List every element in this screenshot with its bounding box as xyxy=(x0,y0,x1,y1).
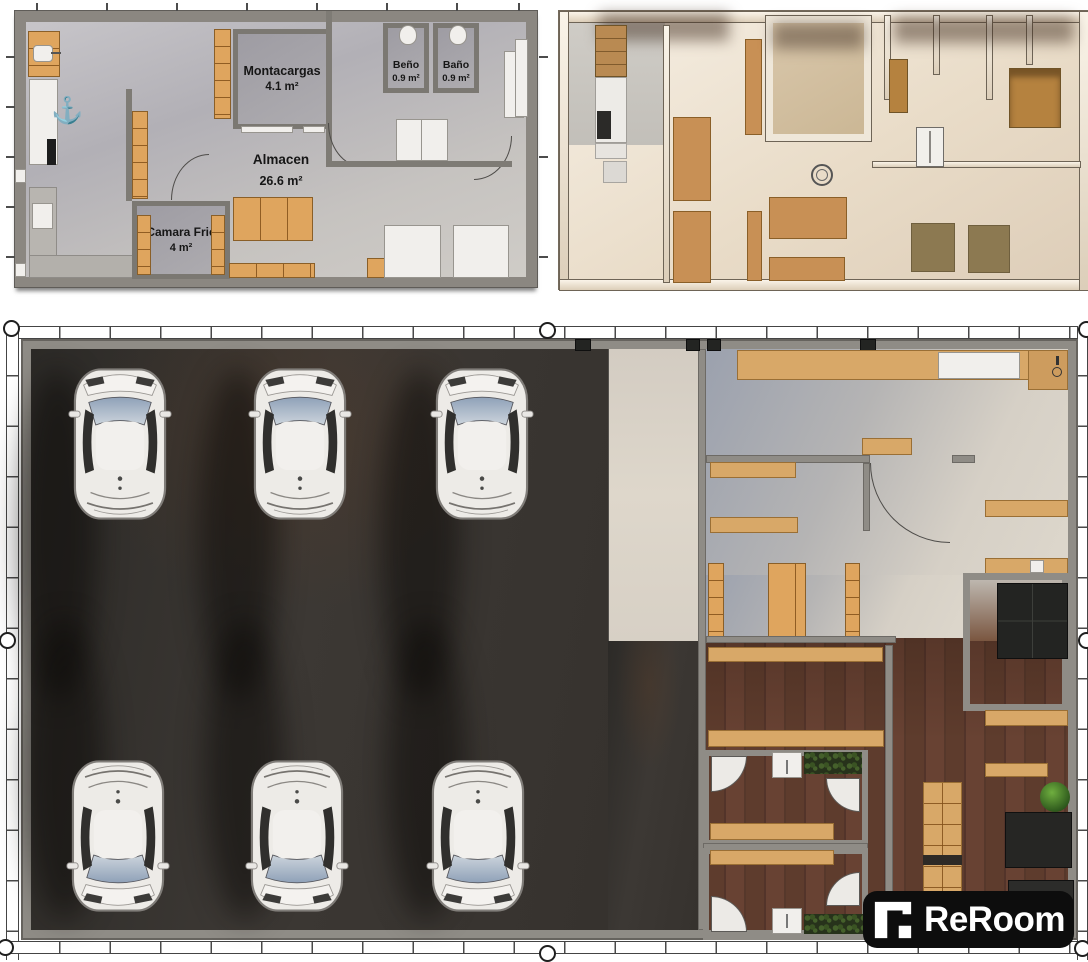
ruler-tick xyxy=(176,3,178,11)
reroom-logo-text: ReRoom xyxy=(924,900,1065,940)
faucet-icon xyxy=(1056,356,1059,365)
shadow xyxy=(894,17,1074,43)
frame-node xyxy=(1078,321,1088,338)
storage-floor xyxy=(706,575,963,641)
faucet-icon xyxy=(1052,367,1062,377)
sink xyxy=(938,352,1020,379)
corner-cabinet xyxy=(1028,350,1068,390)
car xyxy=(245,750,349,922)
shelving-unit xyxy=(214,29,231,119)
wall xyxy=(872,161,1081,168)
shelf-item xyxy=(1030,560,1044,573)
ruler-tick xyxy=(386,3,388,11)
box-shelf xyxy=(673,117,711,201)
floor-mat xyxy=(911,223,955,272)
box-shelf xyxy=(673,211,711,283)
toilet xyxy=(399,25,417,45)
pallet-shelf xyxy=(233,197,313,241)
shelf xyxy=(710,517,798,533)
ruler-tick xyxy=(316,3,318,11)
cabinet xyxy=(1009,68,1061,128)
interior-wall xyxy=(863,463,870,531)
door-frame xyxy=(707,339,721,351)
interior-wall xyxy=(326,161,512,167)
toilet-lid-line xyxy=(786,760,788,774)
wall-fixture xyxy=(15,263,26,277)
door-frame xyxy=(575,339,591,351)
room-montacargas: Montacargas 4.1 m² xyxy=(233,29,331,129)
car xyxy=(248,358,352,530)
bench xyxy=(708,647,883,662)
room-label: Almacen xyxy=(211,151,351,169)
floor-drain-icon xyxy=(816,169,828,181)
bench xyxy=(985,710,1068,726)
interior-wall xyxy=(706,636,896,643)
planter xyxy=(804,752,862,774)
anchor-icon: ⚓ xyxy=(51,95,83,126)
room-area: 4 m² xyxy=(170,241,193,255)
shelf xyxy=(985,500,1068,517)
frame-node xyxy=(1074,940,1088,957)
parking-floor xyxy=(608,641,698,930)
ruler-tick xyxy=(539,56,548,58)
toilet xyxy=(449,25,467,45)
appliance-line xyxy=(929,131,931,163)
plant xyxy=(1040,782,1070,812)
room-almacen-label: Almacen 26.6 m² xyxy=(211,151,351,189)
pallet-shelf xyxy=(229,263,315,278)
locker-cabinet xyxy=(923,782,962,894)
shelving-unit xyxy=(211,215,225,275)
frame-node xyxy=(3,320,20,337)
elevator-door xyxy=(303,126,325,133)
oven-panel xyxy=(47,139,56,165)
toilet-lid-line xyxy=(786,914,788,928)
elevator-door xyxy=(241,126,293,133)
car xyxy=(66,750,170,922)
ruler-tick xyxy=(36,3,38,11)
car xyxy=(68,358,172,530)
faucet-icon xyxy=(51,52,61,54)
box-shelf xyxy=(769,197,847,239)
shelving-unit xyxy=(708,563,724,639)
prep-sink xyxy=(32,203,53,229)
frame-node xyxy=(539,945,556,962)
shelf xyxy=(862,438,912,455)
reroom-logo-badge: ReRoom xyxy=(863,891,1074,948)
double-sink xyxy=(396,119,448,161)
table-block xyxy=(997,583,1068,659)
shadow xyxy=(773,23,864,49)
work-table xyxy=(453,225,509,278)
wall-shelf xyxy=(515,39,528,117)
box-shelf xyxy=(747,211,762,281)
wall xyxy=(663,25,670,283)
ruler-tick xyxy=(539,156,548,158)
walkway-floor xyxy=(608,349,698,641)
wall xyxy=(1079,11,1088,291)
tall-cabinet xyxy=(595,25,627,77)
ruler-tick xyxy=(6,56,15,58)
car xyxy=(430,358,534,530)
box-shelf xyxy=(745,39,762,135)
planter xyxy=(804,914,864,934)
shelf xyxy=(710,462,796,478)
shelving-unit xyxy=(845,563,860,639)
bench xyxy=(710,850,834,865)
interior-wall xyxy=(952,455,975,463)
ruler-tick xyxy=(246,3,248,11)
ruler-tick xyxy=(518,3,520,11)
work-table xyxy=(384,225,441,278)
ruler-tick xyxy=(456,3,458,11)
counter xyxy=(29,255,133,278)
ruler-tick xyxy=(6,256,15,258)
oven xyxy=(597,111,611,139)
door-frame xyxy=(686,339,700,351)
ruler-tick xyxy=(539,256,548,258)
shelf xyxy=(985,558,1068,574)
wall-fixture xyxy=(15,169,26,183)
room-label: Baño xyxy=(443,59,469,73)
frame-node xyxy=(539,322,556,339)
plan-3d xyxy=(558,10,1088,290)
kitchen-sink xyxy=(33,45,53,62)
room-area: 0.9 m² xyxy=(392,73,419,85)
ruler-tick xyxy=(6,206,15,208)
counter xyxy=(595,143,627,159)
reroom-logo-icon xyxy=(872,899,914,941)
bench xyxy=(710,823,834,840)
plan-garage: ReRoom xyxy=(0,320,1088,960)
room-label: Beño xyxy=(393,59,419,73)
sink-divider xyxy=(421,119,422,161)
floor-mat xyxy=(968,225,1010,273)
room-area: 26.6 m² xyxy=(211,173,351,189)
ruler-tick xyxy=(6,156,15,158)
car xyxy=(426,750,530,922)
room-area: 0.9 m² xyxy=(442,73,469,85)
room-label: Camara Frie xyxy=(146,225,215,241)
box-shelf xyxy=(769,257,845,281)
ruler-tick xyxy=(106,3,108,11)
shelving-unit xyxy=(768,563,806,639)
sofa xyxy=(1005,812,1072,868)
frame-node xyxy=(1078,632,1088,649)
bench xyxy=(985,763,1048,777)
locker-gap xyxy=(923,855,962,865)
interior-wall xyxy=(885,645,893,930)
cabinet xyxy=(889,59,908,113)
bench xyxy=(708,730,884,747)
room-label: Montacargas xyxy=(243,63,320,79)
shelving-unit xyxy=(132,111,148,199)
ruler-tick xyxy=(6,106,15,108)
shelving-unit xyxy=(137,215,151,275)
room-area: 4.1 m² xyxy=(265,80,298,95)
plan-2d: ⚓ Montacargas 4.1 m² Beño 0.9 m² Baño 0.… xyxy=(14,10,538,288)
dishwasher xyxy=(603,161,627,183)
wall xyxy=(559,11,569,291)
